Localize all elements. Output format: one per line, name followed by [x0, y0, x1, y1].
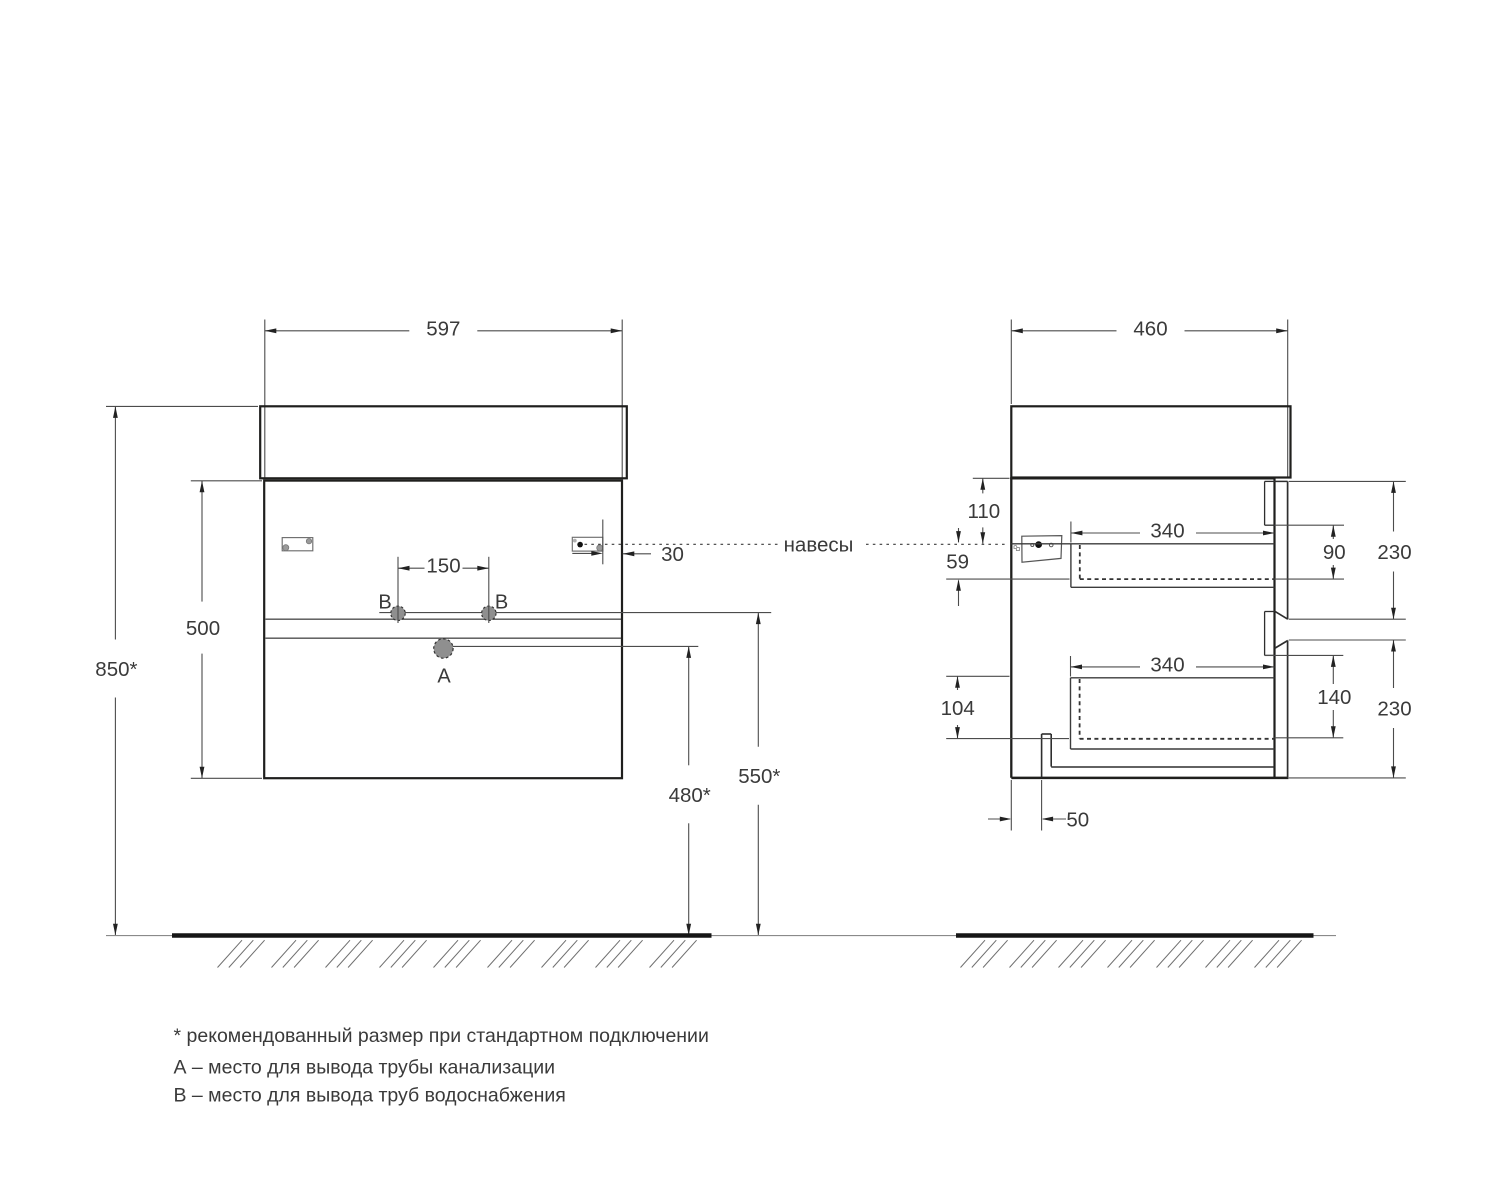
svg-text:* рекомендованный размер при с: * рекомендованный размер при стандартном… — [174, 1025, 709, 1047]
svg-text:230: 230 — [1377, 541, 1411, 564]
svg-text:340: 340 — [1150, 653, 1184, 676]
svg-text:850*: 850* — [95, 658, 137, 681]
svg-text:59: 59 — [946, 550, 969, 573]
svg-text:480*: 480* — [669, 784, 711, 807]
svg-text:104: 104 — [941, 697, 975, 720]
svg-text:597: 597 — [426, 317, 460, 340]
svg-text:340: 340 — [1150, 520, 1184, 543]
svg-text:В – место для вывода труб водо: В – место для вывода труб водоснабжения — [174, 1085, 566, 1107]
svg-text:В: В — [378, 592, 391, 614]
svg-text:110: 110 — [967, 500, 1000, 523]
svg-text:140: 140 — [1317, 686, 1351, 709]
svg-text:460: 460 — [1133, 317, 1167, 340]
svg-text:А – место для вывода трубы кан: А – место для вывода трубы канализации — [174, 1057, 556, 1079]
svg-text:500: 500 — [186, 617, 220, 640]
svg-text:В: В — [495, 592, 508, 614]
svg-text:230: 230 — [1377, 698, 1411, 721]
svg-text:50: 50 — [1066, 808, 1089, 831]
svg-text:550*: 550* — [738, 765, 780, 788]
svg-text:150: 150 — [426, 555, 460, 578]
svg-text:А: А — [437, 666, 451, 688]
svg-text:90: 90 — [1323, 541, 1346, 564]
svg-text:навесы: навесы — [784, 534, 854, 557]
svg-text:30: 30 — [661, 543, 684, 566]
